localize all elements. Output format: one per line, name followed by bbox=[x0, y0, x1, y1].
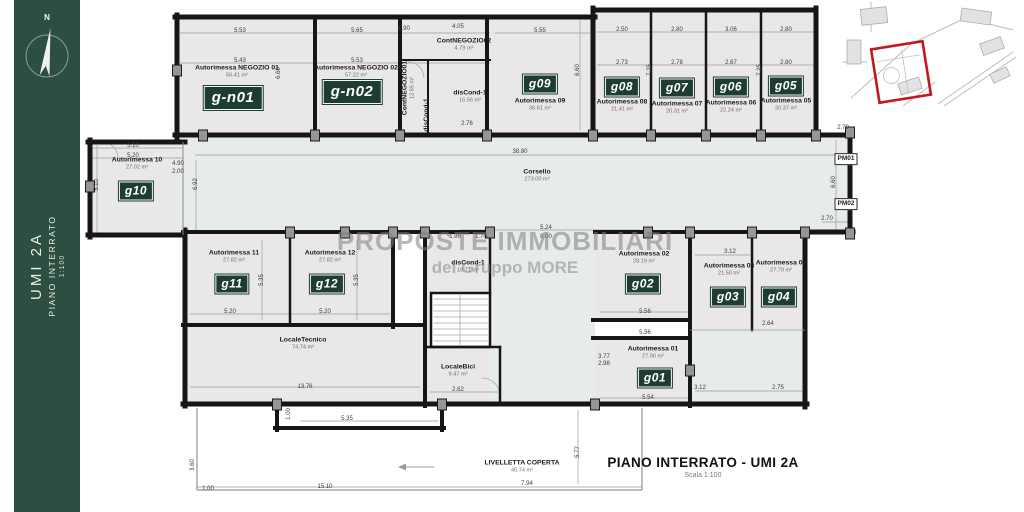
room-label-g04: Autorimessa 0427.79 m² bbox=[756, 260, 807, 275]
unit-badge-g12: g12 bbox=[310, 275, 344, 294]
room-area: 57.22 m² bbox=[314, 73, 398, 80]
unit-badge-g02: g02 bbox=[626, 275, 660, 294]
room-name: LocaleTecnico bbox=[280, 337, 327, 345]
label-discond-1: disCond-116.56 m² bbox=[453, 90, 486, 105]
dimension-label: 8.00 bbox=[540, 234, 552, 240]
dimension-label: 2.98 bbox=[598, 361, 610, 367]
dimension-label: 5.24 bbox=[540, 225, 552, 231]
dimension-label: 2.67 bbox=[725, 60, 737, 66]
room-name: Autorimessa 03 bbox=[704, 263, 755, 271]
unit-badge-g06: g06 bbox=[714, 78, 748, 97]
unit-badge-g07: g07 bbox=[660, 79, 694, 98]
label-corsello: Corsello273.00 m² bbox=[523, 169, 550, 184]
dimension-label: 5.54 bbox=[642, 395, 654, 401]
room-name: Autorimessa 08 bbox=[597, 99, 648, 107]
dimension-label: 5.20 bbox=[127, 153, 139, 159]
unit-badge-g09: g09 bbox=[523, 75, 557, 94]
dimension-label: 3.12 bbox=[724, 249, 736, 255]
room-name: disCond-1 bbox=[453, 90, 486, 98]
unit-badge-g11: g11 bbox=[215, 275, 248, 294]
room-name: Autorimessa 11 bbox=[209, 250, 259, 258]
room-area: 36.61 m² bbox=[515, 106, 566, 113]
dimension-label: 5.10 bbox=[94, 179, 100, 191]
room-area: 4.79 m² bbox=[437, 46, 491, 53]
dimension-label: 5.20 bbox=[224, 309, 236, 315]
title-block: PIANO INTERRATO - UMI 2A Scala 1:100 bbox=[588, 455, 818, 479]
room-label-g09: Autorimessa 0936.61 m² bbox=[515, 98, 566, 113]
room-name: LIVELLETTA COPERTA bbox=[484, 460, 559, 468]
room-name: Autorimessa 07 bbox=[652, 101, 703, 109]
dimension-label: 1.00 bbox=[202, 486, 214, 492]
room-label-g-n02: Autorimessa NEGOZIO 0257.22 m² bbox=[314, 65, 398, 80]
floorplan-page: N UMI 2A PIANO INTERRATO 1:100 bbox=[0, 0, 1024, 512]
dimension-label: 2.70 bbox=[821, 216, 833, 222]
dimension-label: 4.05 bbox=[452, 24, 464, 30]
site-inset-map bbox=[843, 2, 1016, 106]
room-name: Corsello bbox=[523, 169, 550, 177]
dimension-label: 5.35 bbox=[259, 274, 265, 286]
dimension-label: 5.56 bbox=[639, 330, 651, 336]
room-area: 9.47 m² bbox=[441, 372, 475, 379]
room-label-g08: Autorimessa 0821.41 m² bbox=[597, 99, 648, 114]
room-label-g06: Autorimessa 0622.24 m² bbox=[706, 100, 757, 115]
room-name: Autorimessa 02 bbox=[619, 251, 670, 259]
dimension-label: 6.92 bbox=[193, 178, 199, 190]
dimension-label: 2.75 bbox=[772, 385, 784, 391]
room-name: Autorimessa 05 bbox=[761, 98, 812, 106]
dimension-label: 5.10 bbox=[127, 143, 139, 149]
dimension-label: 3.77 bbox=[598, 354, 610, 360]
dimension-label: 2.80 bbox=[780, 27, 792, 33]
room-name: Autorimessa NEGOZIO 01 bbox=[195, 65, 279, 73]
room-name: ContNEGOZIO02 bbox=[437, 38, 491, 46]
room-area: 27.82 m² bbox=[209, 258, 259, 265]
unit-badge-g03: g03 bbox=[711, 288, 745, 307]
dimension-label: 38.80 bbox=[512, 149, 527, 155]
label-livelletta-coperta: LIVELLETTA COPERTA45.74 m² bbox=[484, 460, 559, 475]
label-contnegozio02: ContNEGOZIO024.79 m² bbox=[437, 38, 491, 53]
dimension-label: 2.80 bbox=[671, 27, 683, 33]
room-label-g03: Autorimessa 0321.50 m² bbox=[704, 263, 755, 278]
dimension-label: 5.53 bbox=[351, 58, 363, 64]
label-pm01: PM01 bbox=[835, 153, 858, 165]
drawing-title: PIANO INTERRATO - UMI 2A bbox=[588, 455, 818, 470]
label-localebici: LocaleBici9.47 m² bbox=[441, 364, 475, 379]
dimension-label: 2.70 bbox=[837, 125, 849, 131]
room-area: 20.37 m² bbox=[761, 106, 812, 113]
label-discond-1: disCond-1 bbox=[423, 98, 431, 131]
dimension-label: 4.90 bbox=[172, 161, 184, 167]
dimension-label: 6.60 bbox=[575, 64, 581, 76]
room-label-g12: Autorimessa 1227.82 m² bbox=[305, 250, 356, 265]
room-area: 21.50 m² bbox=[704, 271, 755, 278]
dimension-label: 3.60 bbox=[190, 459, 196, 471]
room-area: 45.74 m² bbox=[484, 468, 559, 475]
room-area: 16.56 m² bbox=[453, 98, 486, 105]
room-area: 74.74 m² bbox=[280, 345, 327, 352]
dimension-label: 5.55 bbox=[534, 28, 546, 34]
room-name: Autorimessa 09 bbox=[515, 98, 566, 106]
room-label-g07: Autorimessa 0720.31 m² bbox=[652, 101, 703, 116]
dimension-label: 5.56 bbox=[639, 309, 651, 315]
dimension-label: 5.65 bbox=[351, 28, 363, 34]
dimension-label: 6.60 bbox=[831, 176, 837, 188]
dimension-label: 2.00 bbox=[172, 169, 184, 175]
dimension-label: 13.76 bbox=[297, 384, 312, 390]
room-name: ContNEGOZIO01 bbox=[402, 61, 410, 115]
room-label-g-n01: Autorimessa NEGOZIO 0156.41 m² bbox=[195, 65, 279, 80]
room-label-g11: Autorimessa 1127.82 m² bbox=[209, 250, 259, 265]
room-area: 27.90 m² bbox=[628, 354, 679, 361]
unit-badge-g-n01: g-n01 bbox=[204, 86, 263, 110]
unit-badge-g08: g08 bbox=[605, 78, 639, 97]
room-label-g01: Autorimessa 0127.90 m² bbox=[628, 346, 679, 361]
dimension-label: 5.20 bbox=[319, 309, 331, 315]
room-area: 12.65 m² bbox=[410, 61, 417, 115]
dimension-label: 5.53 bbox=[234, 28, 246, 34]
unit-badge-g04: g04 bbox=[762, 288, 796, 307]
dimension-label: 5.35 bbox=[341, 416, 353, 422]
dimension-label: 1.70 bbox=[475, 234, 487, 240]
room-name: Autorimessa 06 bbox=[706, 100, 757, 108]
dimension-label: 2.50 bbox=[616, 27, 628, 33]
room-area: 18.71 m² bbox=[451, 268, 484, 275]
room-area: 20.31 m² bbox=[652, 109, 703, 116]
dimension-label: 5.35 bbox=[354, 274, 360, 286]
unit-badge-g05: g05 bbox=[769, 77, 803, 96]
room-area: 21.41 m² bbox=[597, 107, 648, 114]
room-name: disCond-1 bbox=[451, 260, 484, 268]
room-label-g02: Autorimessa 0228.19 m² bbox=[619, 251, 670, 266]
dimension-label: 6.60 bbox=[276, 67, 282, 79]
room-label-g05: Autorimessa 0520.37 m² bbox=[761, 98, 812, 113]
label-pm02: PM02 bbox=[835, 198, 858, 210]
dimension-label: 2.73 bbox=[616, 60, 628, 66]
dimension-label: 2.78 bbox=[671, 60, 683, 66]
dimension-label: 7.25 bbox=[647, 64, 653, 76]
room-name: Autorimessa NEGOZIO 02 bbox=[314, 65, 398, 73]
room-name: disCond-1 bbox=[423, 98, 431, 131]
dimension-label: 2.76 bbox=[461, 121, 473, 127]
dimension-label: 5.43 bbox=[234, 58, 246, 64]
label-contnegozio01: ContNEGOZIO0112.65 m² bbox=[402, 61, 417, 115]
dimension-label: 2.80 bbox=[780, 60, 792, 66]
label-discond-1: disCond-118.71 m² bbox=[451, 260, 484, 275]
room-area: 56.41 m² bbox=[195, 73, 279, 80]
unit-badge-g-n02: g-n02 bbox=[323, 80, 382, 104]
dimension-label: 2.62 bbox=[452, 387, 464, 393]
dimension-label: 7.94 bbox=[521, 481, 533, 487]
floor-plan-walls bbox=[0, 0, 1024, 512]
room-area: 27.82 m² bbox=[305, 258, 356, 265]
room-name: Autorimessa 04 bbox=[756, 260, 807, 268]
room-area: 22.24 m² bbox=[706, 108, 757, 115]
dimension-label: 15.10 bbox=[317, 484, 332, 490]
unit-badge-g01: g01 bbox=[638, 369, 672, 388]
dimension-label: 3.06 bbox=[725, 27, 737, 33]
room-area: 273.00 m² bbox=[523, 177, 550, 184]
room-name: LocaleBici bbox=[441, 364, 475, 372]
room-area: 27.02 m² bbox=[112, 165, 163, 172]
room-area: 27.79 m² bbox=[756, 268, 807, 275]
dimension-label: 5.77 bbox=[575, 446, 581, 458]
drawing-scale: Scala 1:100 bbox=[588, 472, 818, 479]
dimension-label: 2.64 bbox=[762, 321, 774, 327]
room-name: Autorimessa 12 bbox=[305, 250, 356, 258]
dimension-label: 1.00 bbox=[286, 408, 292, 420]
unit-badge-g10: g10 bbox=[119, 182, 153, 201]
dimension-label: 1.96 bbox=[449, 234, 461, 240]
label-localetecnico: LocaleTecnico74.74 m² bbox=[280, 337, 327, 352]
dimension-label: 7.25 bbox=[757, 64, 763, 76]
room-area: 28.19 m² bbox=[619, 259, 670, 266]
dimension-label: 3.12 bbox=[694, 385, 706, 391]
room-name: Autorimessa 01 bbox=[628, 346, 679, 354]
dimension-label: 1.90 bbox=[398, 26, 410, 32]
